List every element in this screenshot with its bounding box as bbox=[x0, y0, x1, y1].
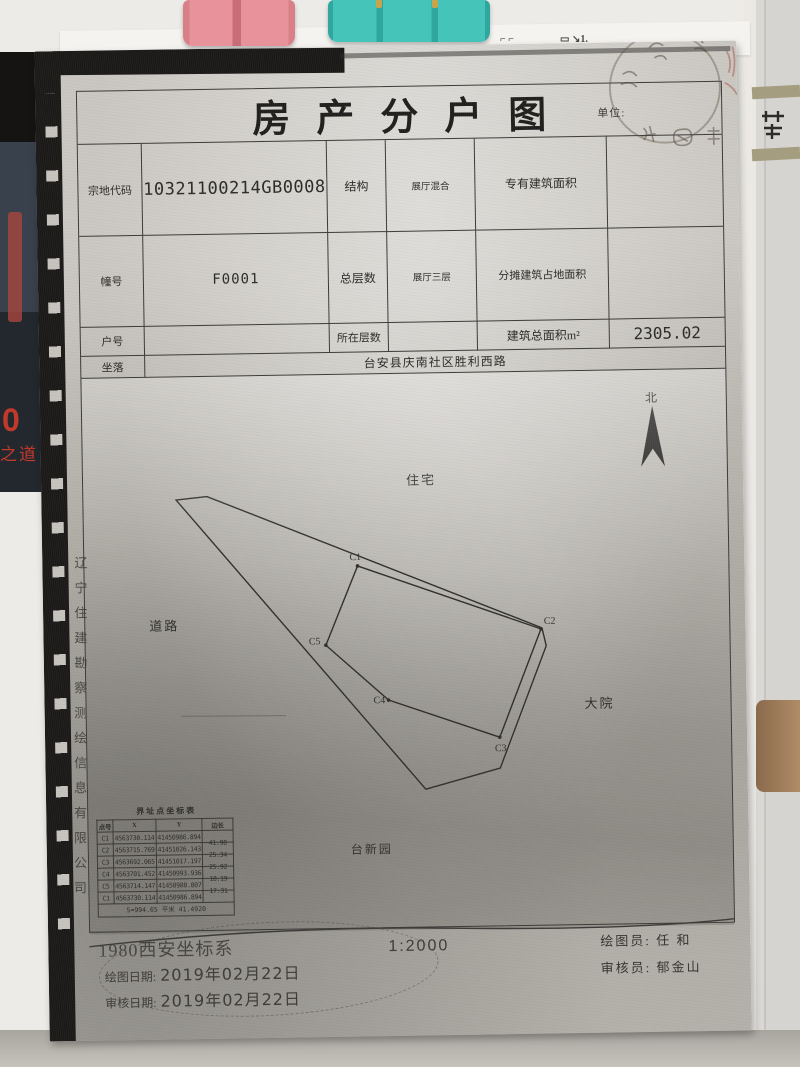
shared-footprint-value bbox=[607, 227, 724, 320]
photo-of-document: { "photo": { "poster": { "num": "0", "te… bbox=[0, 0, 800, 1067]
building-polygon bbox=[325, 563, 543, 740]
col-x: X bbox=[113, 819, 156, 832]
point-label-c5: C5 bbox=[309, 636, 321, 647]
book-red-text: 之道 bbox=[0, 440, 38, 465]
point-label-c1: C1 bbox=[349, 552, 361, 563]
drafter-label: 绘图员: bbox=[600, 933, 651, 949]
seal-unit-label: 单位: bbox=[597, 104, 625, 120]
col-point: 点号 bbox=[97, 820, 113, 832]
floor-label: 所在层数 bbox=[329, 323, 388, 353]
house-no-value bbox=[144, 324, 329, 356]
coordinate-table-title: 界址点坐标表 bbox=[96, 804, 236, 817]
reviewer-name: 郁金山 bbox=[656, 959, 701, 975]
total-area-label: 建筑总面积m² bbox=[477, 320, 609, 351]
info-table: 宗地代码 210321100214GB00080 结构 展厅混合 专有建筑面积 … bbox=[78, 134, 726, 379]
drafter-name: 任 和 bbox=[656, 932, 691, 948]
draw-date-value: 2019年02月22日 bbox=[160, 964, 301, 985]
point-label-c3: C3 bbox=[495, 743, 507, 754]
review-date-value: 2019年02月22日 bbox=[160, 990, 301, 1011]
parcel-code-value: 210321100214GB00080 bbox=[141, 141, 327, 236]
document-page: 辽宁住建勘察测绘信息有限公司 单位: 房产分户图 宗地代码 2103211002… bbox=[34, 41, 751, 1042]
col-y: Y bbox=[156, 819, 203, 832]
structure-label: 结构 bbox=[326, 140, 386, 233]
point-label-c4: C4 bbox=[374, 695, 386, 706]
label-residential: 住宅 bbox=[406, 469, 436, 488]
review-date-line: 审核日期: 2019年02月22日 bbox=[105, 986, 301, 1013]
parcel-map: C1 C2 C3 C4 C5 北 住宅 道路 大院 台新园 界址点坐标表 bbox=[81, 369, 734, 935]
background-glyph bbox=[758, 108, 788, 142]
background-shelf-bar bbox=[752, 147, 800, 161]
exclusive-area-label: 专有建筑面积 bbox=[474, 137, 607, 231]
book-red-mark bbox=[8, 212, 22, 322]
coordinate-system-note: 1980西安坐标系 bbox=[98, 935, 233, 963]
binder-clip-teal bbox=[328, 0, 490, 42]
drafter-line: 绘图员: 任 和 bbox=[600, 929, 691, 949]
structure-value: 展厅混合 bbox=[385, 139, 475, 232]
coordinate-table-footer: S=994.65 平米 41.4920 bbox=[98, 903, 235, 918]
north-label: 北 bbox=[645, 391, 657, 405]
document-frame: 房产分户图 宗地代码 210321100214GB00080 结构 展厅混合 专… bbox=[76, 81, 735, 933]
house-no-label: 户号 bbox=[81, 327, 144, 357]
background-shelf-bar bbox=[752, 85, 800, 99]
col-length: 边长 bbox=[202, 818, 233, 830]
shared-footprint-label: 分摊建筑占地面积 bbox=[475, 229, 608, 322]
total-floors-value: 展厅三层 bbox=[386, 231, 476, 323]
book-red-number: 0 bbox=[2, 402, 20, 439]
reviewer-label: 审核员: bbox=[601, 960, 652, 976]
total-area-value: 2305.02 bbox=[609, 318, 725, 349]
outer-boundary bbox=[176, 491, 548, 793]
reviewer-line: 审核员: 郁金山 bbox=[601, 956, 702, 977]
point-label-c2: C2 bbox=[544, 616, 556, 627]
parcel-code-label: 宗地代码 bbox=[78, 144, 142, 237]
clip-hinge-pin bbox=[432, 0, 438, 8]
label-courtyard: 大院 bbox=[584, 693, 614, 712]
binder-clip-pink bbox=[183, 0, 295, 46]
review-date-label: 审核日期: bbox=[105, 996, 157, 1011]
coordinate-table: 界址点坐标表 点号 X Y 边长 C14563730.11441450986.8… bbox=[96, 804, 238, 917]
scan-black-band-top bbox=[52, 48, 344, 76]
building-no-label: 幢号 bbox=[79, 236, 143, 328]
draw-date-label: 绘图日期: bbox=[105, 970, 157, 985]
location-label: 坐落 bbox=[81, 356, 144, 379]
seal-handwriting bbox=[594, 41, 746, 163]
floor-value bbox=[388, 322, 477, 352]
draw-date-line: 绘图日期: 2019年02月22日 bbox=[105, 960, 301, 987]
label-garden: 台新园 bbox=[351, 840, 393, 858]
total-floors-label: 总层数 bbox=[327, 232, 387, 324]
background-wood-strip bbox=[756, 700, 800, 792]
company-name-vertical: 辽宁住建勘察测绘信息有限公司 bbox=[71, 556, 90, 936]
map-scale: 1:2000 bbox=[388, 937, 449, 956]
north-arrow-icon bbox=[640, 406, 665, 467]
label-road: 道路 bbox=[149, 615, 179, 634]
clip-hinge-pin bbox=[376, 0, 382, 8]
building-no-value: F0001 bbox=[142, 233, 328, 327]
